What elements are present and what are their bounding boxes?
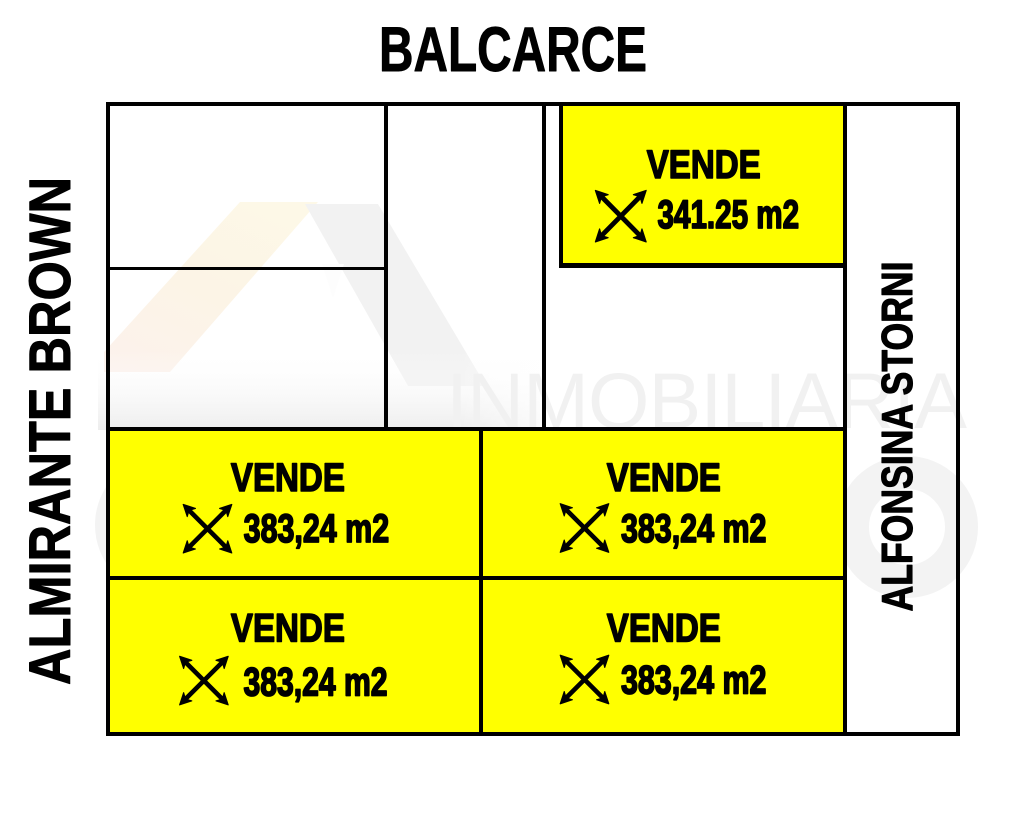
svg-text:BALCARCE: BALCARCE [379,15,647,85]
svg-text:ALFONSINA STORNI: ALFONSINA STORNI [874,262,922,612]
svg-text:383,24 m2: 383,24 m2 [244,661,388,705]
svg-text:383,24 m2: 383,24 m2 [244,507,390,551]
svg-text:VENDE: VENDE [231,607,345,651]
svg-text:383,24 m2: 383,24 m2 [621,507,767,551]
svg-text:341.25 m2: 341.25 m2 [658,193,800,237]
svg-text:ALMIRANTE BROWN: ALMIRANTE BROWN [18,177,83,685]
svg-text:VENDE: VENDE [231,456,345,500]
svg-text:383,24 m2: 383,24 m2 [621,659,767,703]
svg-text:VENDE: VENDE [607,607,721,651]
svg-text:VENDE: VENDE [607,456,721,500]
svg-text:VENDE: VENDE [647,143,761,187]
